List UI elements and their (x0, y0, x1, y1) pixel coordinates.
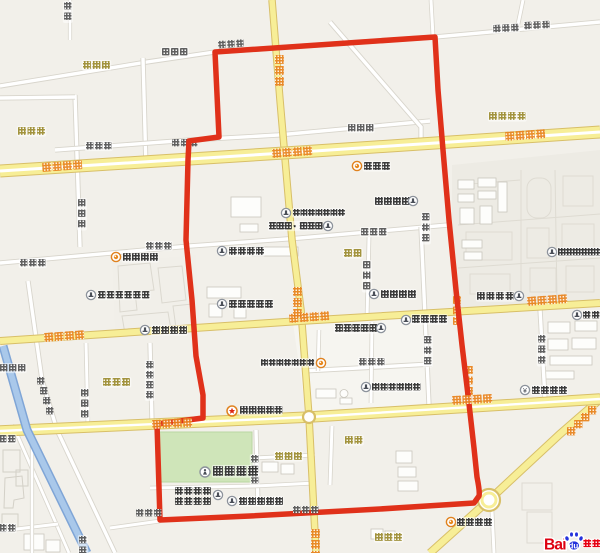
svg-text:¥: ¥ (523, 388, 527, 395)
svg-text:du: du (569, 542, 579, 551)
svg-text:Bai: Bai (544, 537, 566, 553)
